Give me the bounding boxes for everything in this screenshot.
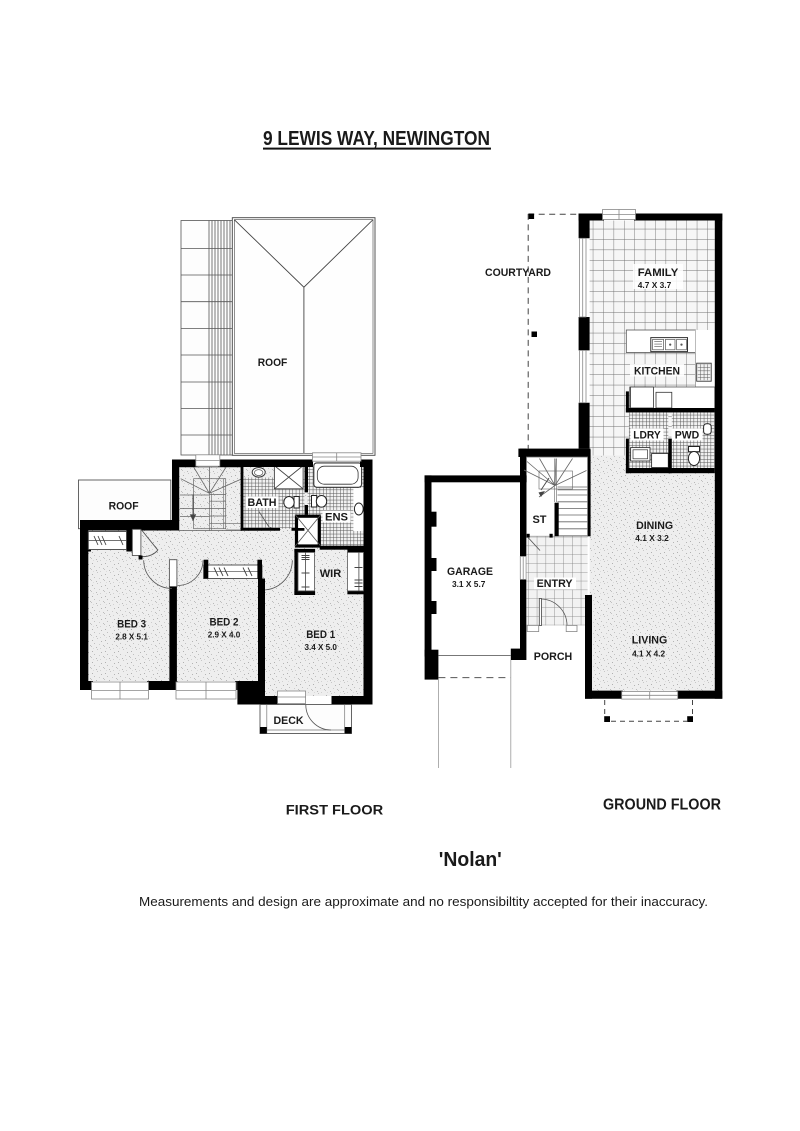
svg-text:2.9 X 4.0: 2.9 X 4.0 (208, 630, 241, 640)
svg-text:Measurements and design are ap: Measurements and design are approximate … (139, 894, 708, 909)
svg-text:4.1 X 3.2: 4.1 X 3.2 (635, 533, 669, 543)
svg-text:2.8 X 5.1: 2.8 X 5.1 (115, 632, 148, 642)
svg-text:DINING: DINING (636, 520, 673, 532)
svg-text:LDRY: LDRY (633, 430, 661, 442)
svg-text:ROOF: ROOF (258, 357, 288, 369)
svg-text:FAMILY: FAMILY (638, 267, 679, 279)
svg-text:'Nolan': 'Nolan' (439, 849, 502, 871)
svg-text:3.4 X 5.0: 3.4 X 5.0 (304, 642, 337, 652)
svg-text:4.7 X 3.7: 4.7 X 3.7 (638, 280, 672, 290)
svg-text:BED 1: BED 1 (306, 629, 335, 641)
svg-text:FIRST FLOOR: FIRST FLOOR (286, 803, 384, 818)
svg-text:ENS: ENS (325, 512, 348, 524)
svg-text:ENTRY: ENTRY (537, 578, 574, 590)
svg-text:PWD: PWD (675, 430, 700, 442)
svg-text:COURTYARD: COURTYARD (485, 267, 551, 279)
svg-text:KITCHEN: KITCHEN (634, 366, 680, 378)
svg-text:3.1 X 5.7: 3.1 X 5.7 (452, 579, 486, 589)
svg-text:PORCH: PORCH (534, 651, 573, 663)
svg-text:BED 2: BED 2 (210, 617, 239, 629)
svg-text:BATH: BATH (248, 497, 277, 509)
svg-text:GROUND FLOOR: GROUND FLOOR (603, 797, 721, 814)
svg-text:DECK: DECK (274, 715, 304, 727)
svg-text:BED 3: BED 3 (117, 619, 146, 631)
svg-text:GARAGE: GARAGE (447, 566, 493, 578)
svg-text:ROOF: ROOF (109, 501, 139, 513)
svg-text:9 LEWIS WAY, NEWINGTON: 9 LEWIS WAY, NEWINGTON (263, 128, 490, 150)
svg-text:4.1 X 4.2: 4.1 X 4.2 (632, 649, 665, 659)
svg-text:ST: ST (533, 514, 547, 526)
svg-text:WIR: WIR (320, 568, 342, 580)
svg-text:LIVING: LIVING (632, 635, 668, 647)
